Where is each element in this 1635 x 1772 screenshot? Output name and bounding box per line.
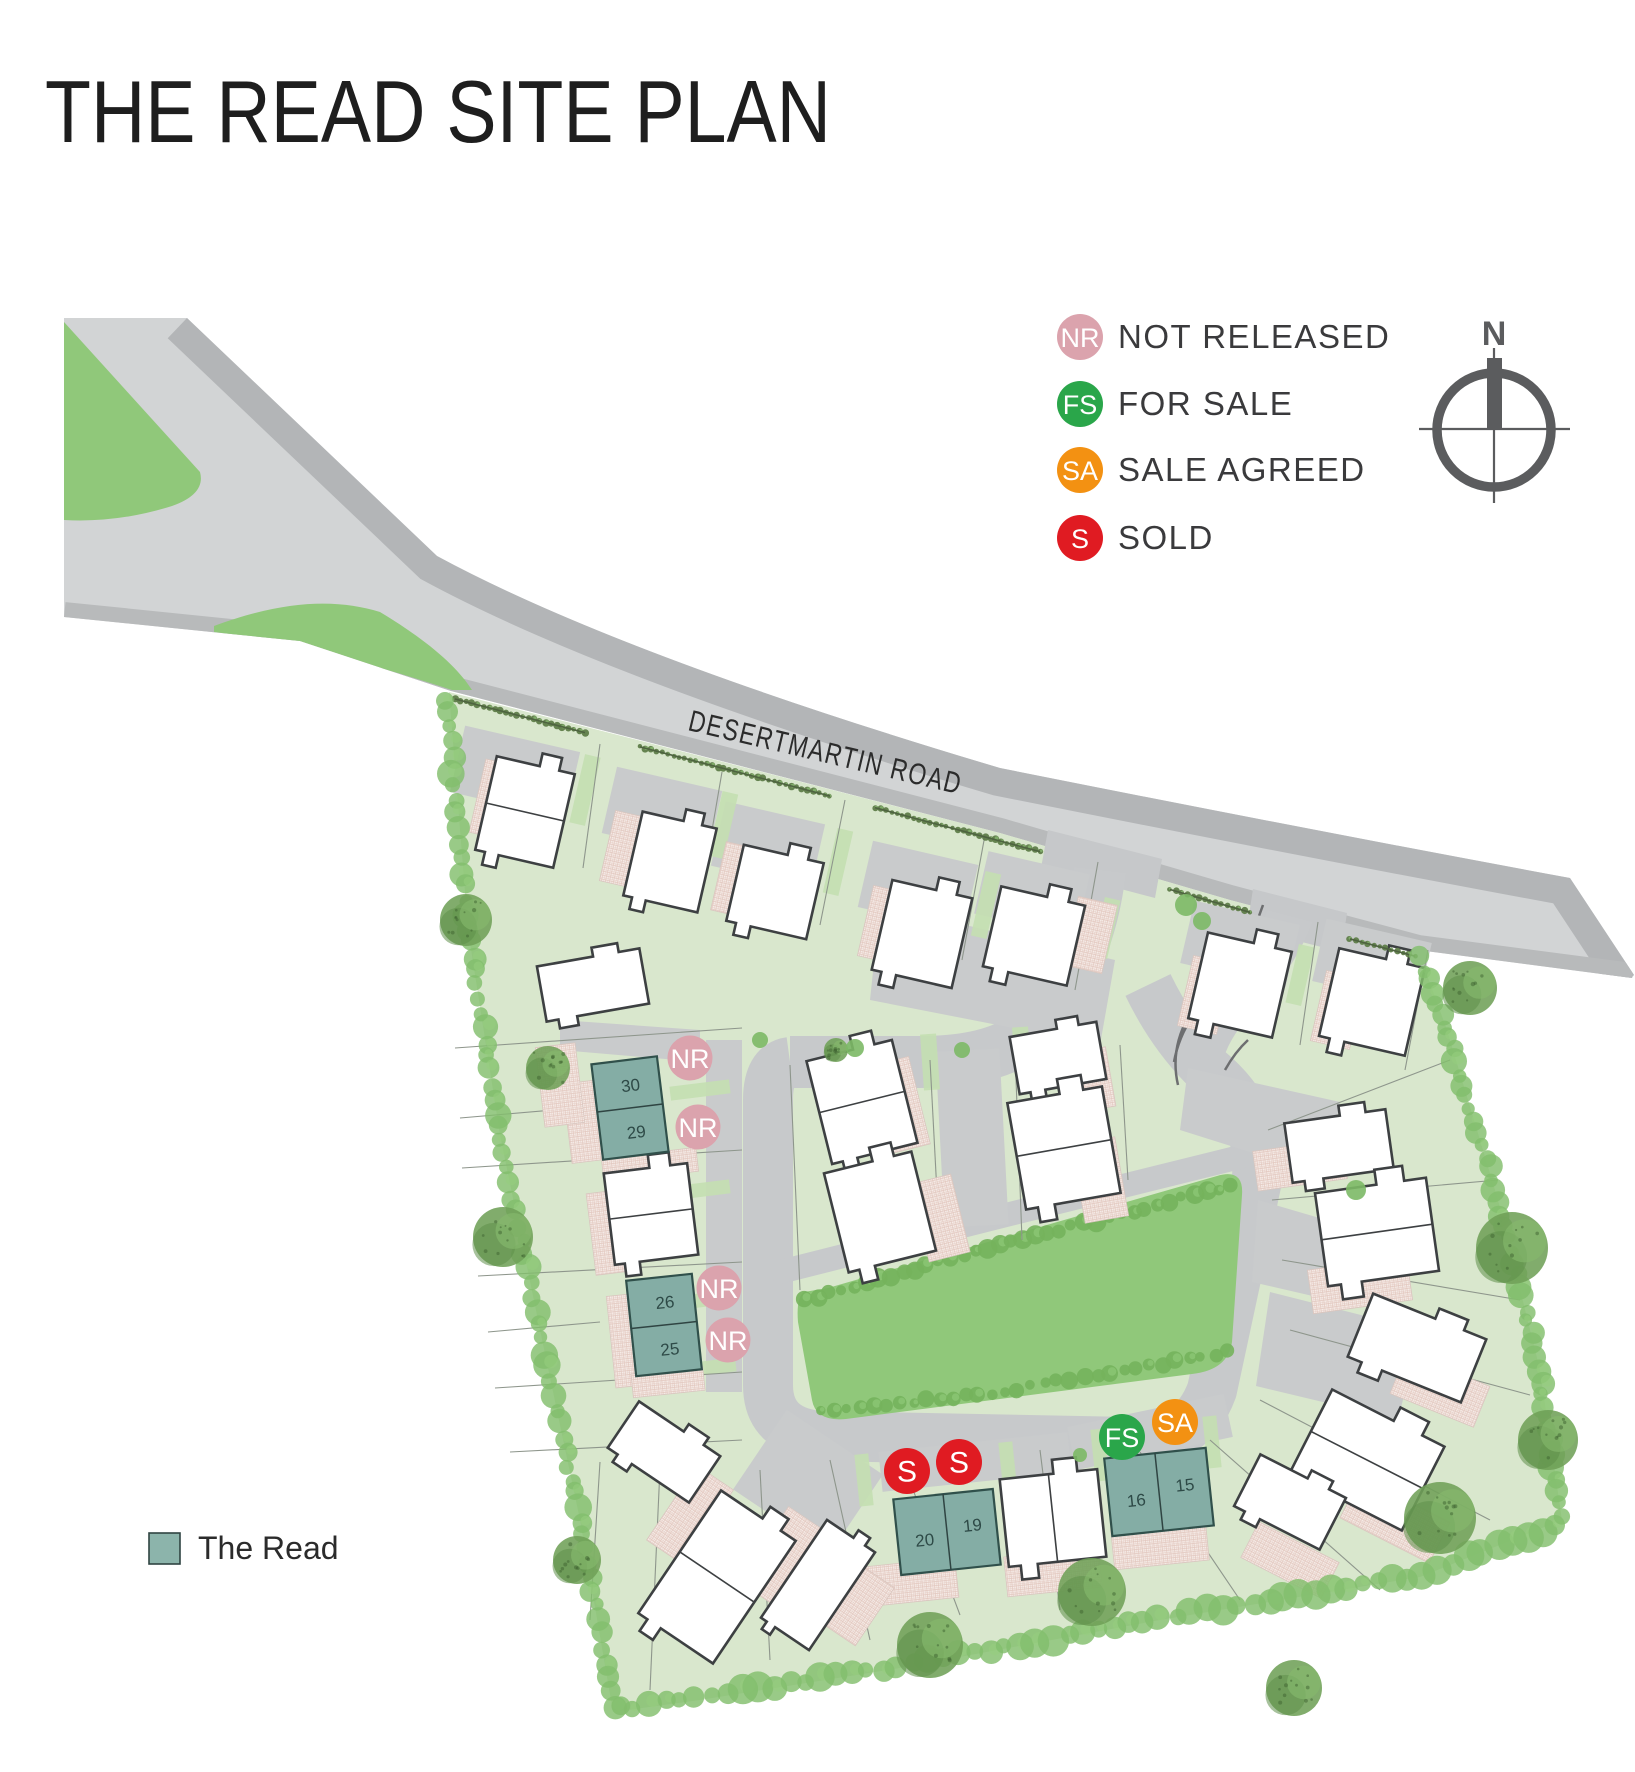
svg-text:20: 20 [914, 1530, 935, 1551]
svg-text:26: 26 [655, 1292, 676, 1313]
svg-text:S: S [897, 1456, 917, 1489]
svg-text:16: 16 [1126, 1490, 1147, 1511]
svg-text:15: 15 [1175, 1475, 1196, 1496]
svg-text:19: 19 [962, 1515, 983, 1536]
svg-text:NR: NR [1061, 323, 1100, 353]
svg-text:S: S [949, 1447, 969, 1480]
svg-text:25: 25 [659, 1339, 680, 1360]
svg-text:NR: NR [679, 1113, 718, 1143]
svg-text:30: 30 [620, 1075, 641, 1096]
svg-text:SA: SA [1062, 456, 1098, 486]
svg-text:NR: NR [671, 1044, 710, 1074]
svg-text:N: N [1482, 315, 1507, 353]
svg-text:NR: NR [700, 1274, 739, 1304]
svg-text:SA: SA [1157, 1408, 1193, 1438]
svg-text:SOLD: SOLD [1118, 519, 1214, 556]
svg-text:FS: FS [1105, 1423, 1140, 1453]
svg-text:SALE AGREED: SALE AGREED [1118, 451, 1366, 488]
svg-text:THE READ SITE PLAN: THE READ SITE PLAN [45, 62, 831, 161]
svg-text:29: 29 [626, 1122, 647, 1143]
svg-text:FS: FS [1063, 390, 1098, 420]
svg-text:NR: NR [709, 1326, 748, 1356]
svg-text:FOR SALE: FOR SALE [1118, 385, 1293, 422]
svg-text:NOT RELEASED: NOT RELEASED [1118, 318, 1390, 355]
svg-text:S: S [1071, 524, 1089, 554]
svg-text:The Read: The Read [198, 1530, 339, 1566]
